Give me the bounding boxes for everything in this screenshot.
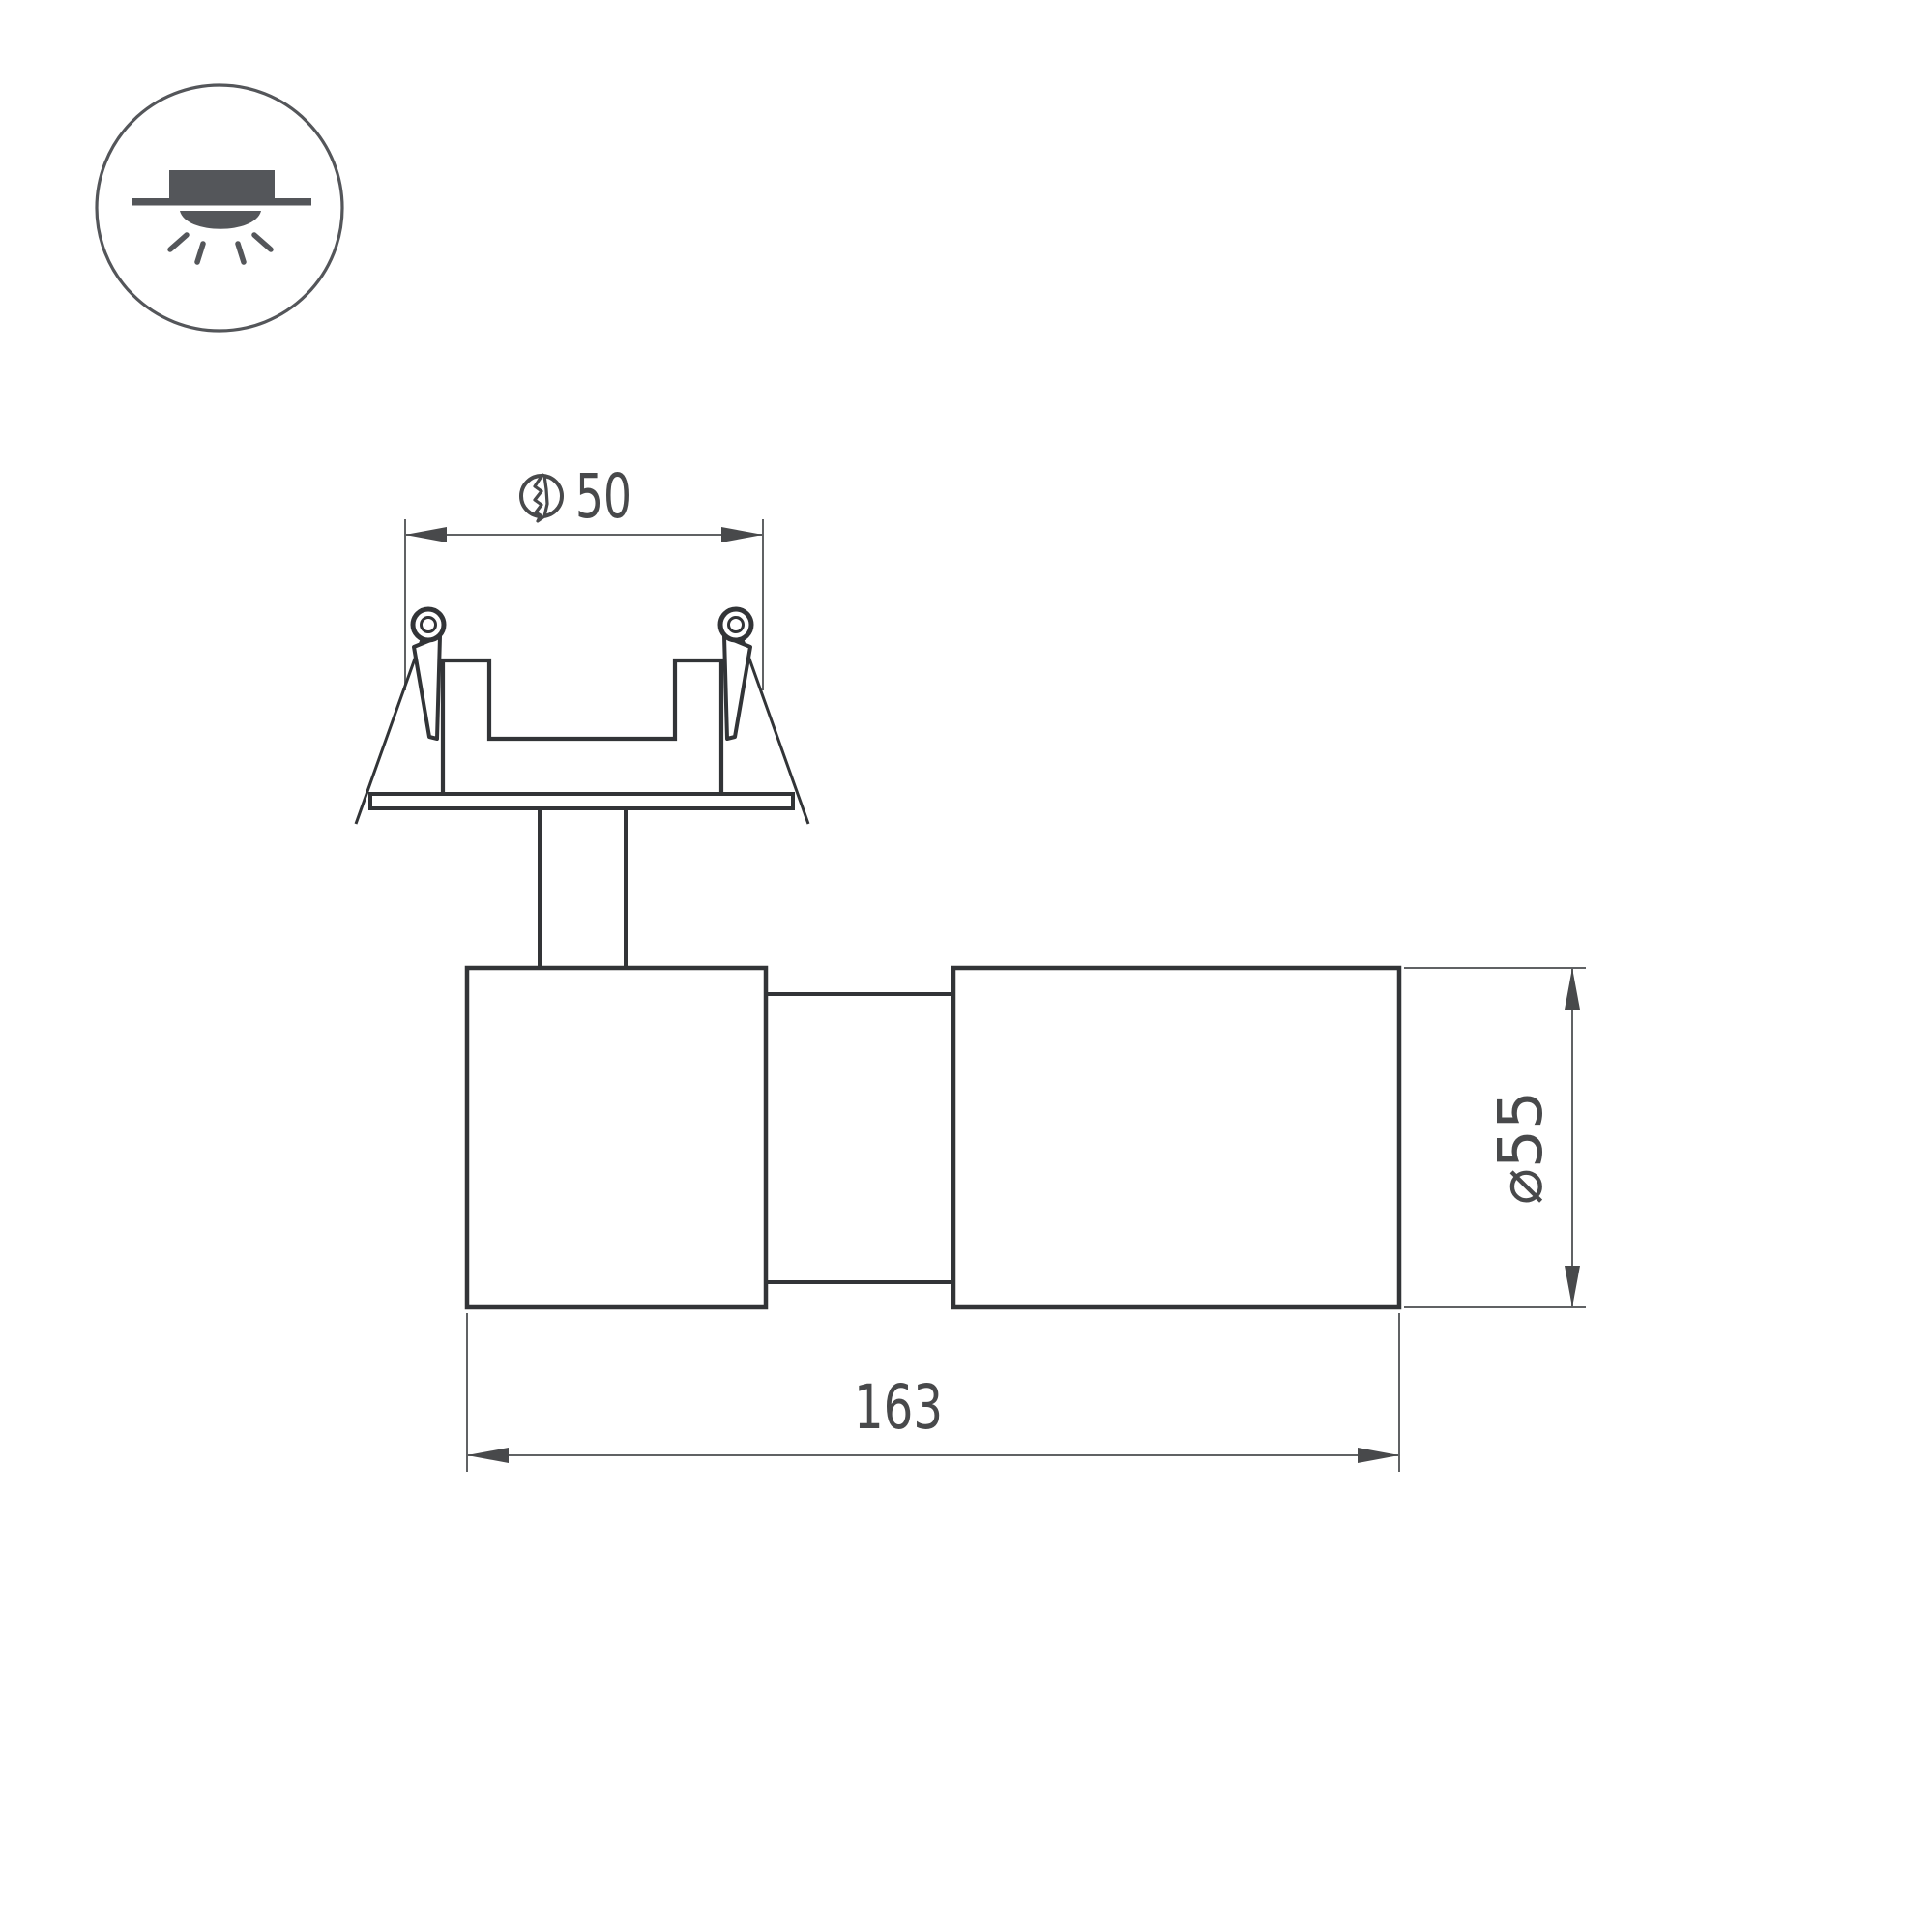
- recessed-downlight-icon: [97, 85, 342, 331]
- overall-length-dimension: 163: [467, 1313, 1399, 1472]
- body-front-cylinder: [953, 968, 1399, 1307]
- body-rear-cylinder: [467, 968, 766, 1307]
- recessed-housing-profile: [443, 660, 721, 794]
- spring-clip-arm-right: [724, 636, 750, 739]
- body-diameter-dimension: ⌀55: [1404, 968, 1586, 1307]
- mounting-bracket: [356, 609, 808, 968]
- spring-clip-arm-left: [414, 636, 440, 739]
- arrowhead-right: [721, 527, 763, 542]
- arrowhead-top: [1565, 968, 1580, 1010]
- drawing-canvas: 50: [0, 0, 1932, 1932]
- hole-diameter-dimension: 50: [405, 461, 763, 690]
- technical-drawing: 50: [0, 0, 1932, 1932]
- arrowhead-bottom: [1565, 1266, 1580, 1307]
- spring-clip-pivot-right: [720, 609, 751, 640]
- spotlight-body: [467, 968, 1399, 1307]
- arrowhead-left: [405, 527, 447, 542]
- trim-ring-flange: [370, 794, 793, 808]
- arrowhead-left: [467, 1448, 509, 1463]
- stem: [540, 808, 626, 968]
- mounting-hole-icon: [521, 475, 562, 521]
- body-diameter-value: ⌀55: [1485, 1091, 1556, 1205]
- hole-diameter-value: 50: [575, 461, 631, 532]
- icon-ceiling-line: [132, 198, 311, 206]
- body-middle-joint: [766, 994, 953, 1282]
- arrowhead-right: [1358, 1448, 1399, 1463]
- overall-length-value: 163: [854, 1372, 943, 1443]
- icon-light-rays: [170, 235, 271, 262]
- icon-circle-border: [97, 85, 342, 331]
- icon-fixture-body: [169, 170, 275, 200]
- icon-light-dome: [180, 211, 261, 229]
- spring-clip-pivot-left: [413, 609, 444, 640]
